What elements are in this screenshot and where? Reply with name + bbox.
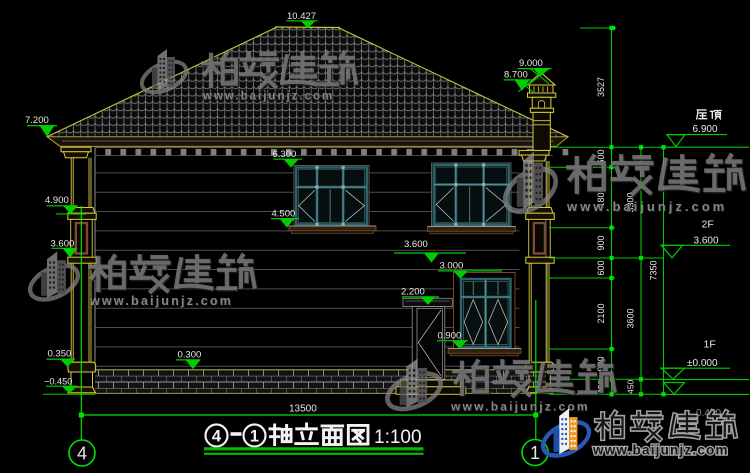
svg-text:±0.000: ±0.000 — [687, 358, 718, 369]
svg-text:2F: 2F — [702, 219, 714, 231]
svg-text:4: 4 — [212, 428, 222, 446]
svg-text:3527: 3527 — [596, 77, 606, 97]
svg-text:4.500: 4.500 — [272, 208, 296, 219]
svg-text:2100: 2100 — [596, 303, 606, 323]
svg-text:8.700: 8.700 — [504, 69, 528, 80]
svg-text:www.baijunjz.com: www.baijunjz.com — [89, 294, 233, 308]
svg-text:9.000: 9.000 — [519, 58, 543, 69]
svg-text:4: 4 — [77, 444, 87, 464]
svg-text:900: 900 — [596, 235, 606, 250]
svg-text:0.900: 0.900 — [438, 330, 462, 341]
svg-text:0.300: 0.300 — [178, 350, 202, 361]
svg-text:600: 600 — [596, 260, 606, 275]
svg-text:6.900: 6.900 — [693, 124, 718, 135]
svg-text:3.600: 3.600 — [51, 238, 75, 249]
svg-text:450: 450 — [626, 379, 636, 393]
svg-text:1:100: 1:100 — [374, 427, 422, 448]
svg-text:3.000: 3.000 — [440, 260, 464, 271]
svg-text:3.600: 3.600 — [404, 239, 428, 250]
svg-text:www.baijunjz.com: www.baijunjz.com — [592, 443, 729, 458]
svg-text:www.baijunjz.com: www.baijunjz.com — [202, 91, 334, 103]
svg-text:1: 1 — [530, 443, 540, 463]
svg-text:2.200: 2.200 — [401, 287, 425, 298]
svg-text:1F: 1F — [704, 338, 716, 350]
svg-text:6.300: 6.300 — [273, 149, 297, 160]
svg-text:0.350: 0.350 — [48, 349, 72, 360]
svg-text:3600: 3600 — [626, 308, 636, 328]
svg-text:7350: 7350 — [649, 260, 659, 280]
svg-text:1: 1 — [250, 428, 259, 446]
svg-text:7.200: 7.200 — [25, 115, 49, 126]
svg-text:−0.450: −0.450 — [44, 376, 72, 386]
svg-text:4.900: 4.900 — [45, 195, 69, 206]
svg-text:13500: 13500 — [289, 403, 317, 414]
svg-text:www.baijunjz.com: www.baijunjz.com — [566, 199, 727, 214]
